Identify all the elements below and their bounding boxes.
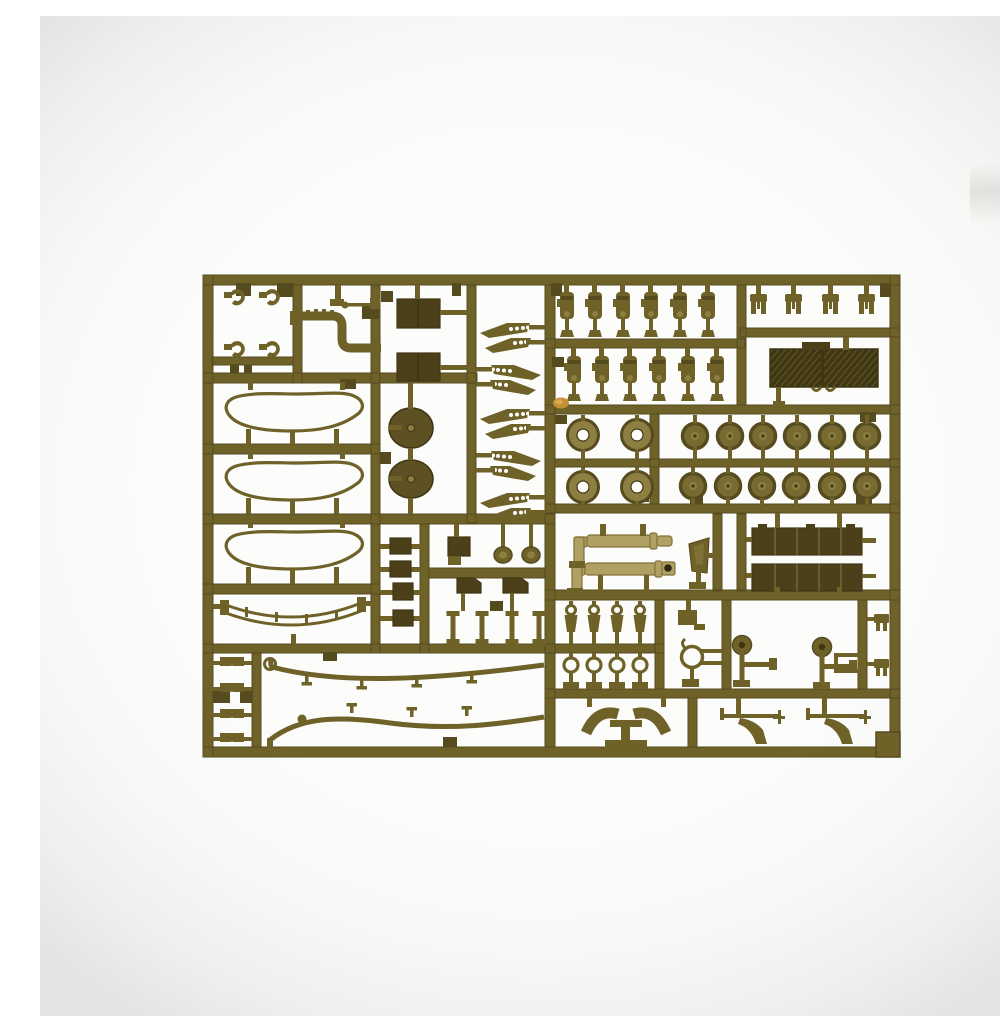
towing-shackle-parts bbox=[565, 601, 647, 644]
corner-block bbox=[876, 732, 900, 757]
eyelet-ring-parts bbox=[563, 653, 648, 689]
track-guard-part bbox=[213, 597, 372, 645]
stowage-rack-parts bbox=[746, 513, 876, 592]
fender-bracket-parts bbox=[720, 698, 871, 744]
gun-barrel-parts bbox=[567, 524, 675, 594]
small-fork-parts bbox=[867, 614, 889, 676]
tow-hook-parts bbox=[224, 289, 280, 357]
sight-shield-part bbox=[689, 538, 715, 589]
seat-horn-part bbox=[586, 698, 666, 748]
tow-cable-parts bbox=[265, 659, 545, 749]
clevis-fork-parts bbox=[750, 284, 875, 314]
hatch-panel-parts bbox=[397, 285, 467, 381]
sprue-illustration bbox=[40, 16, 1000, 1016]
small-block-parts bbox=[380, 538, 423, 626]
mirror-parts bbox=[733, 636, 866, 690]
drive-housing-parts bbox=[389, 383, 433, 514]
product-photo bbox=[40, 16, 1000, 1016]
fender-tip-parts bbox=[476, 323, 545, 523]
clamp-ring-part bbox=[678, 600, 722, 687]
gear-lever-part bbox=[342, 298, 381, 309]
molding-flash-orange bbox=[553, 398, 569, 409]
small-fitting-parts bbox=[447, 524, 546, 645]
engine-grille-part bbox=[770, 337, 878, 407]
hull-rim-parts bbox=[226, 382, 362, 584]
